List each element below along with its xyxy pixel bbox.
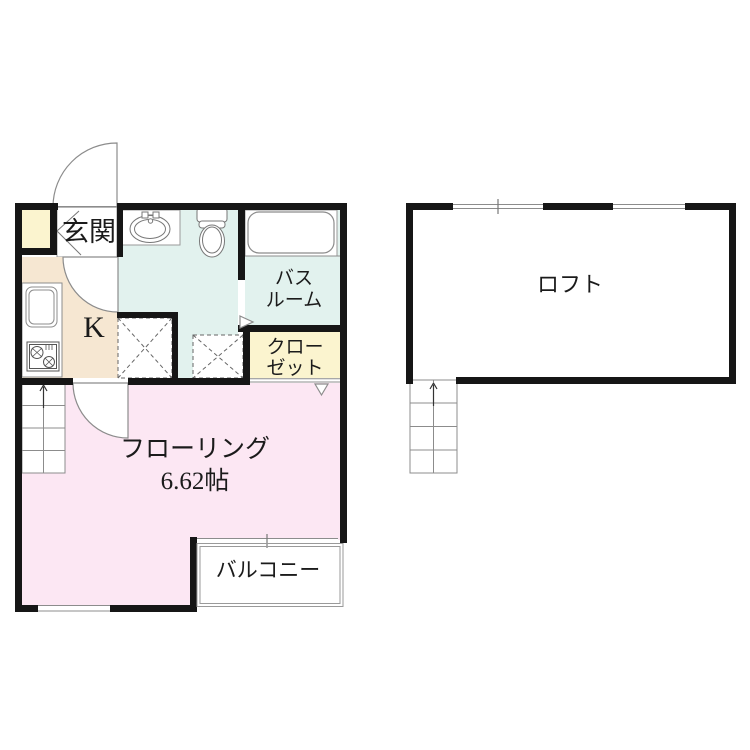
toilet bbox=[197, 208, 227, 257]
wall bbox=[729, 203, 736, 384]
wash-basin-unit bbox=[122, 210, 180, 245]
floor-plan-drawing: 玄関 K バス ルーム クロー ゼット フローリング 6.62帖 バルコニー ロ… bbox=[0, 0, 750, 750]
balcony-label: バルコニー bbox=[216, 558, 321, 582]
wall bbox=[15, 378, 73, 385]
wall bbox=[22, 248, 57, 255]
wall bbox=[456, 377, 736, 384]
wall bbox=[50, 207, 57, 255]
main-room-label: フローリング bbox=[120, 435, 270, 463]
kitchen-label: K bbox=[83, 311, 105, 344]
entrance-door-arc bbox=[53, 143, 117, 207]
wall bbox=[110, 605, 197, 612]
toilet-tank bbox=[197, 208, 227, 222]
storage-space bbox=[193, 335, 243, 378]
bathroom-label-line2: ルーム bbox=[266, 290, 322, 311]
toilet-bowl bbox=[200, 225, 225, 257]
wall bbox=[172, 312, 178, 383]
wall bbox=[340, 203, 347, 543]
washer-space bbox=[118, 318, 172, 378]
stove bbox=[27, 342, 59, 371]
entrance-label: 玄関 bbox=[62, 217, 116, 247]
wall bbox=[406, 203, 453, 210]
bathtub bbox=[245, 210, 340, 256]
bathroom-label-line1: バス bbox=[275, 268, 313, 289]
wall bbox=[128, 378, 250, 385]
wall bbox=[543, 203, 613, 210]
wall bbox=[117, 207, 123, 257]
wall bbox=[406, 203, 413, 384]
main-room-size: 6.62帖 bbox=[161, 467, 230, 495]
wall bbox=[238, 207, 245, 280]
loft-label: ロフト bbox=[537, 272, 603, 297]
floor-plan-page: 玄関 K バス ルーム クロー ゼット フローリング 6.62帖 バルコニー ロ… bbox=[0, 0, 750, 750]
kitchen-sink bbox=[26, 287, 57, 327]
wall bbox=[15, 203, 22, 612]
closet-label-line2: ゼット bbox=[266, 357, 323, 379]
kitchen-counter bbox=[22, 283, 62, 377]
wall bbox=[117, 312, 178, 318]
shoe-cabinet-fill bbox=[22, 210, 50, 248]
wall bbox=[238, 325, 347, 332]
wall bbox=[243, 332, 250, 378]
wall bbox=[15, 605, 38, 612]
closet-opening bbox=[250, 379, 340, 382]
wall bbox=[117, 203, 347, 210]
wall bbox=[685, 203, 736, 210]
closet-label-line1: クロー bbox=[266, 336, 323, 358]
wall bbox=[190, 537, 197, 607]
